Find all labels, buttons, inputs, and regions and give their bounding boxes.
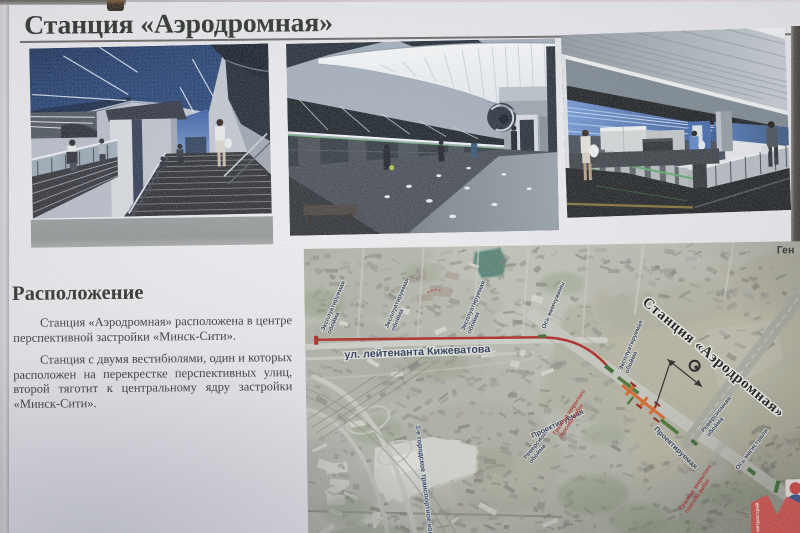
svg-text:метрострой: метрострой <box>754 502 761 531</box>
svg-text:Ген: Ген <box>777 244 795 256</box>
